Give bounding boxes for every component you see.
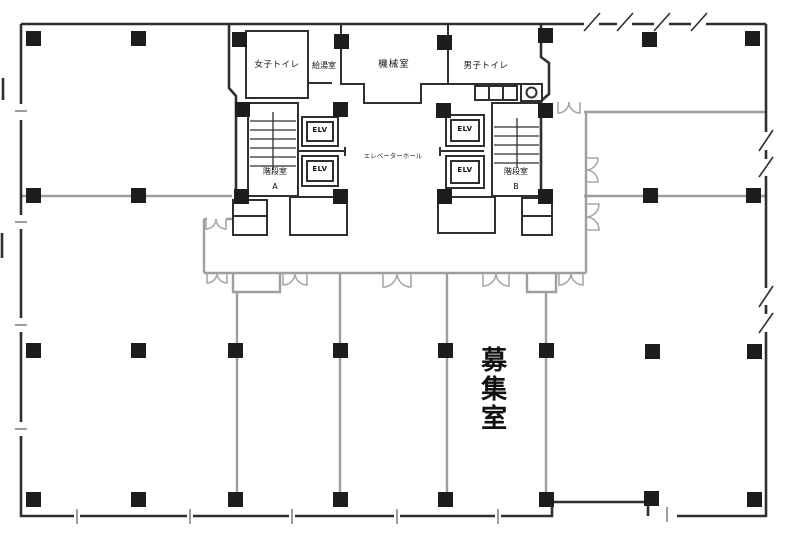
column [436,103,451,118]
column [645,344,660,359]
column [333,492,348,507]
basin [527,88,537,98]
window-slash [759,157,773,177]
column [26,31,41,46]
kitchenette-label: 給湯室 [307,62,341,71]
elevator-label: ELV [449,126,481,134]
column [642,32,657,47]
elevator-label: ELV [449,167,481,175]
column [131,188,146,203]
column [538,189,553,204]
elevator-hall-label: エレベーターホール [355,153,431,160]
window-slash [759,286,773,307]
elevator-divider-left [298,147,345,156]
column [234,189,249,204]
elevator-divider-right [440,147,484,156]
column [26,492,41,507]
outer-walls [2,24,767,517]
column [438,492,453,507]
door-arc [558,102,569,113]
stairwell-b-label: 階段室 [493,168,539,177]
door-arc [216,219,226,229]
stairwell-b-id: B [493,183,539,192]
column [747,344,762,359]
column [334,34,349,49]
elevator-label: ELV [304,127,336,135]
column [437,189,452,204]
duct-box-left [233,273,280,292]
column [644,491,659,506]
toilet-stalls [475,86,517,100]
door-arc [483,273,496,286]
column [228,343,243,358]
stairwell-a-label: 階段室 [252,168,298,177]
stairwell-a-id: A [252,183,298,192]
door-arc [569,102,580,113]
mens-toilet-label: 男子トイレ [454,62,518,71]
column [746,188,761,203]
column [333,102,348,117]
column [538,103,553,118]
column [131,492,146,507]
vacancy-label: 募集室 [477,346,506,442]
column [745,31,760,46]
column [539,343,554,358]
column [232,32,247,47]
door-arc [571,273,583,285]
column [333,343,348,358]
door-arc [217,273,227,283]
womens-toilet-label: 女子トイレ [245,61,309,70]
stairwell-b-treads [494,118,539,168]
door-arc [295,273,307,285]
floor-plan: 女子トイレ 給湯室 機械室 男子トイレ エレベーターホール 階段室 A 階段室 … [0,0,787,539]
window-slash [691,13,707,31]
door-arc [586,170,598,182]
window-slash [759,130,773,151]
door-arc [586,158,598,170]
column [747,492,762,507]
door-arc [586,217,599,230]
column [131,31,146,46]
column [333,189,348,204]
column [26,343,41,358]
column [539,492,554,507]
column [235,102,250,117]
kitchenette-walls [308,31,332,88]
service-box [233,200,267,235]
stall-dividers [489,86,503,100]
column [437,35,452,50]
window-slash [584,13,600,31]
duct-box-right [527,273,556,292]
door-arc [496,273,509,286]
stair-treads [250,112,539,170]
partition-walls [21,112,766,500]
stairwell-a-treads [250,112,296,170]
window-slashes [584,13,773,333]
column [643,188,658,203]
floor-plan-drawing [0,0,787,539]
edge-fragment [2,78,3,258]
column [26,188,41,203]
door-arc [397,273,411,287]
machine-room-label: 機械室 [364,60,424,70]
door-arc [383,273,397,287]
elevator-label: ELV [304,166,336,174]
core-west-wall [229,24,236,198]
column [438,343,453,358]
door-arc [206,219,216,229]
door-arc [207,273,217,283]
window-slash [617,13,633,31]
window-slash [759,313,773,333]
door-arc [586,204,599,217]
window-slash [654,13,670,31]
door-arc [559,273,571,285]
column [228,492,243,507]
column [131,343,146,358]
columns [26,28,762,507]
column [538,28,553,43]
door-arc [283,273,295,285]
